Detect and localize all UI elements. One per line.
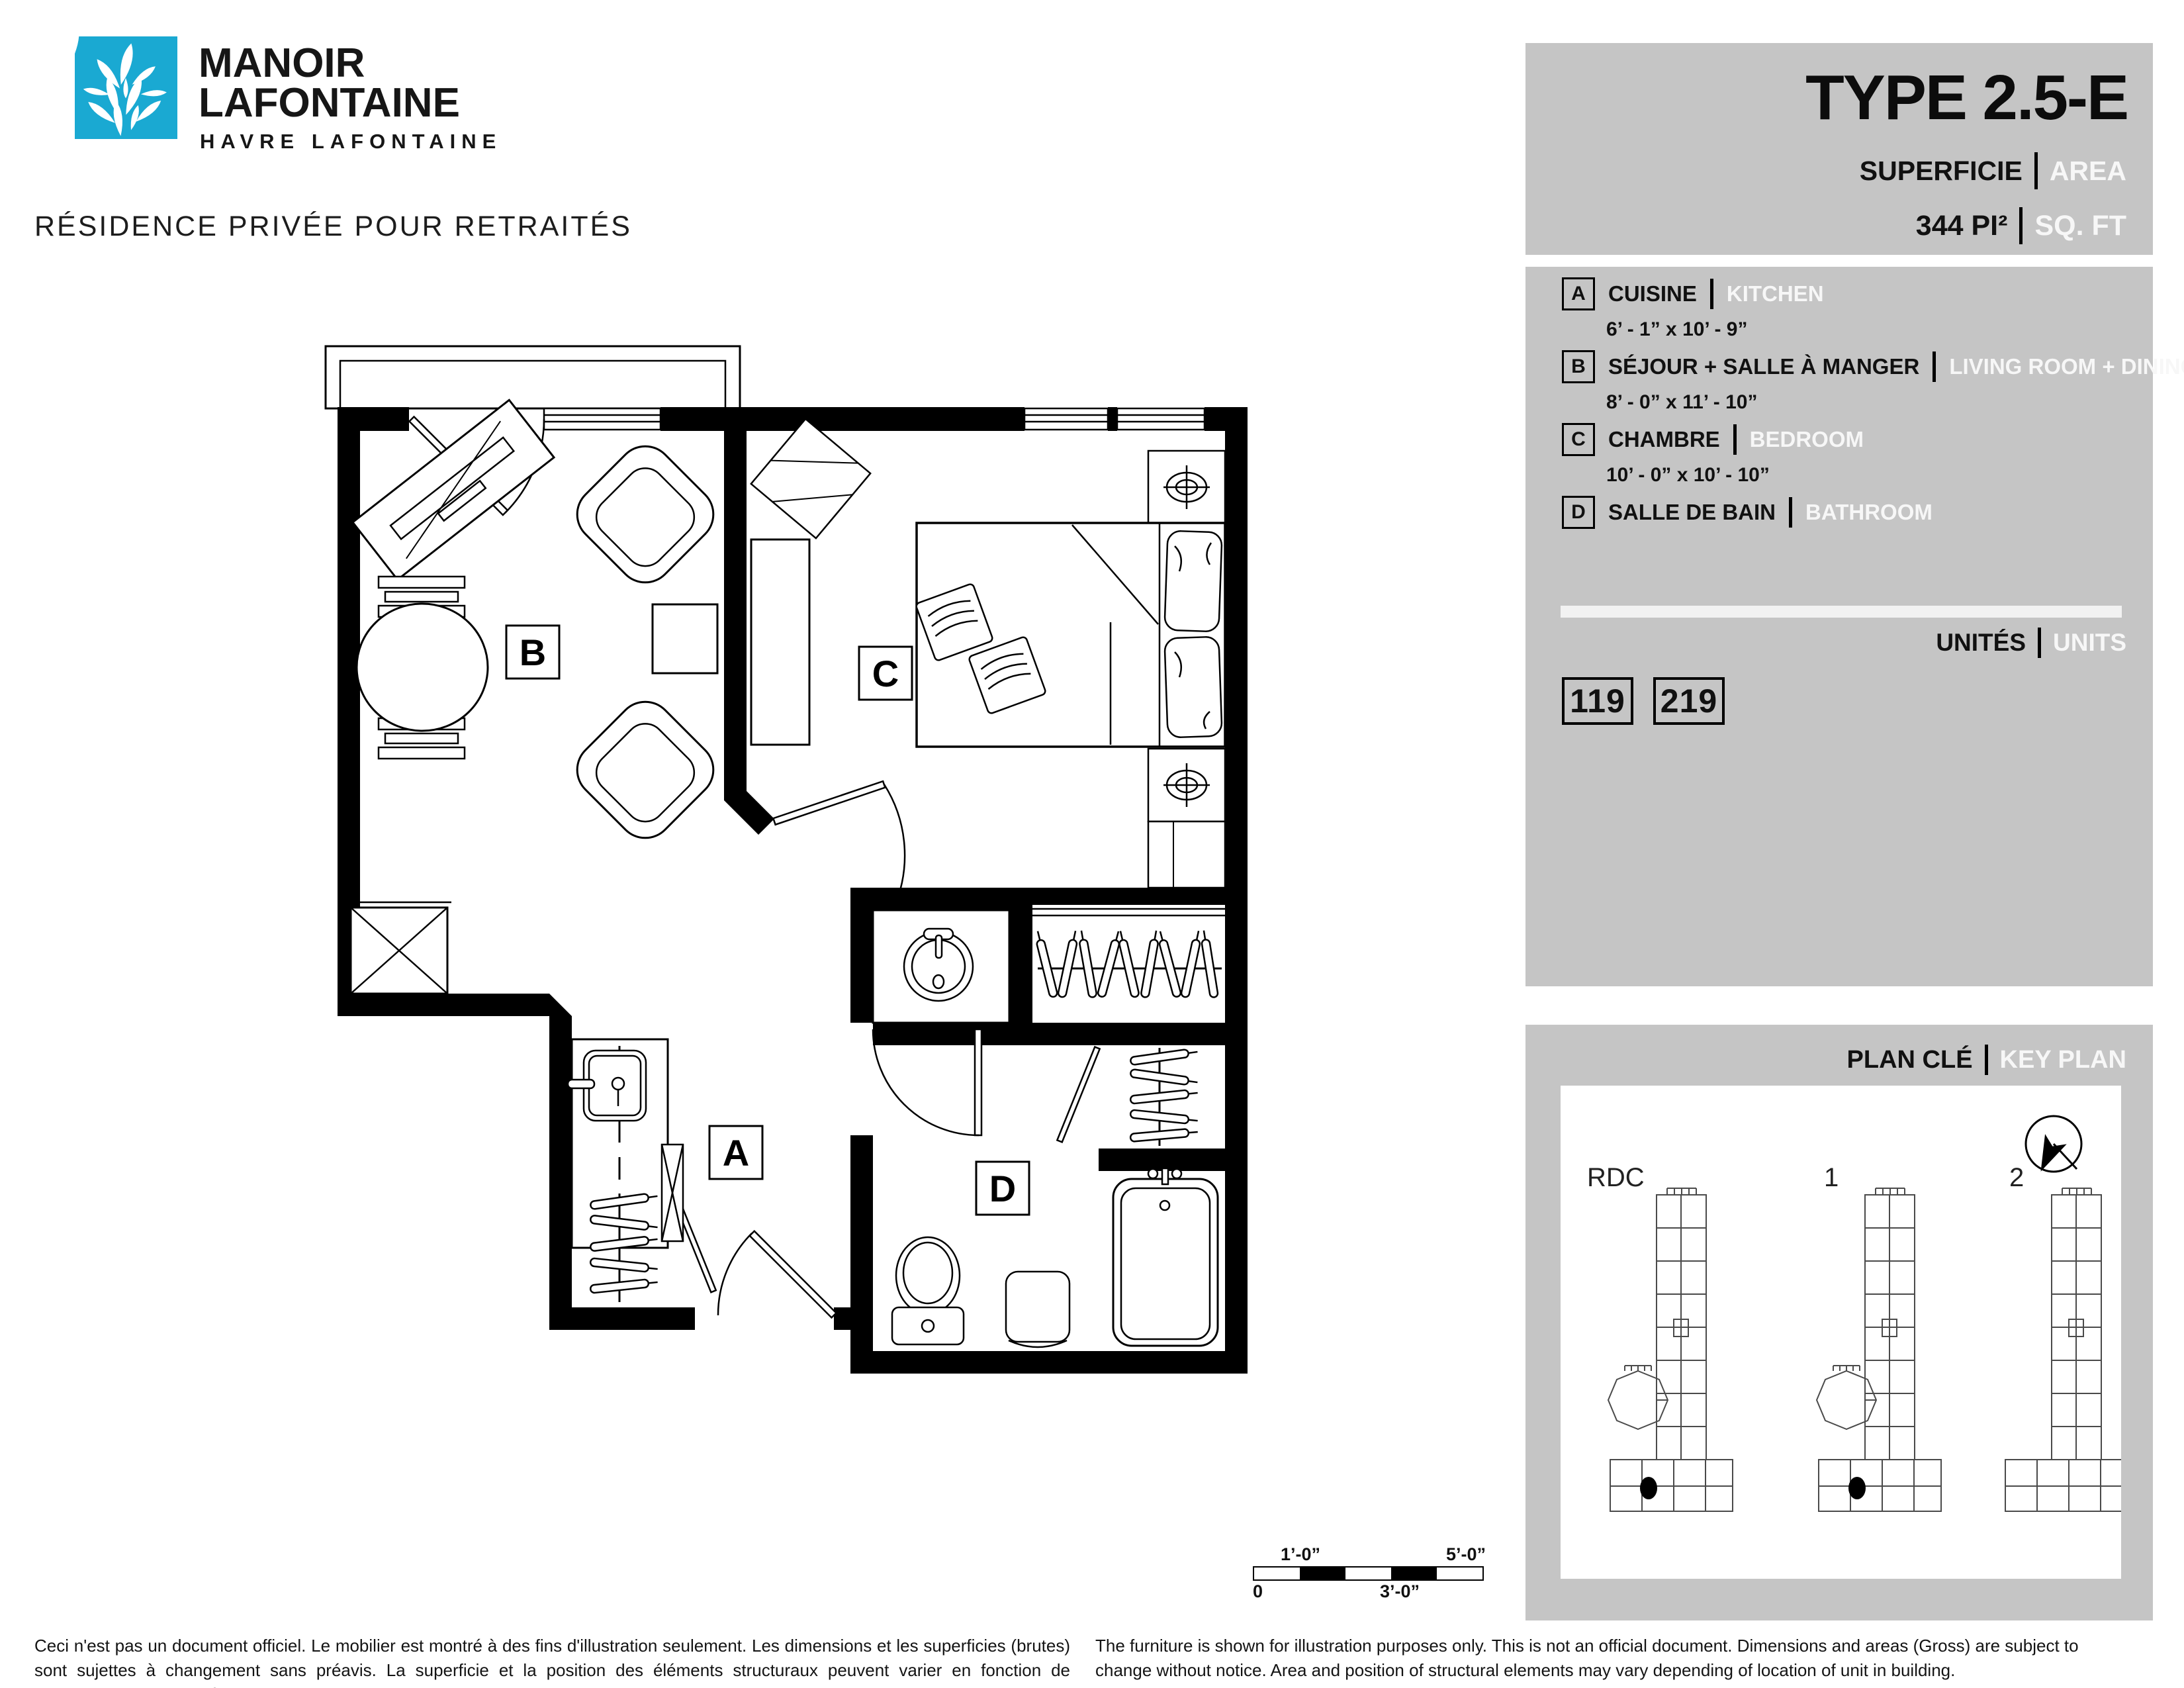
scale-bar: 1’-0” 5’-0” 0 3’-0” [1253,1544,1486,1592]
brand-tagline: RÉSIDENCE PRIVÉE POUR RETRAITÉS [34,211,632,243]
bedroom-furniture [751,419,1225,888]
key-plan-canvas: RDC 1 2 [1561,1086,2121,1579]
room-label-a: A [723,1132,749,1174]
scale-tick-label: 0 [1253,1581,1263,1602]
key-plan-floor-label-rdc: RDC [1587,1163,1645,1192]
legend-name-en: BEDROOM [1750,427,1864,452]
brand-name: MANOIR LAFONTAINE [199,44,460,123]
legend-dimensions: 10’ - 0” x 10’ - 10” [1606,464,1770,487]
key-plan-label-fr: PLAN CLÉ [1847,1046,1973,1074]
coffee-table [653,604,717,673]
area-value: 344 PI² [1916,210,2008,242]
key-plan-panel: PLAN CLÉ KEY PLAN [1525,1025,2153,1620]
legend-dimensions: 8’ - 0” x 11’ - 10” [1606,391,1758,414]
key-plan-label-en: KEY PLAN [2000,1046,2126,1074]
scale-bar-segments [1253,1566,1484,1581]
vanity-sink [873,910,1009,1023]
legend-name-fr: CUISINE [1608,281,1697,306]
room-label-b: B [520,632,546,673]
key-plan-drawing: RDC 1 2 [1561,1086,2121,1579]
superficie-label-fr: SUPERFICIE [1860,156,2023,187]
scale-tick-label: 5’-0” [1446,1544,1486,1565]
armchair [566,690,725,849]
legend-panel: A CUISINE KITCHEN 6’ - 1” x 10’ - 9” B S… [1525,267,2153,986]
compass-icon [2026,1116,2081,1176]
armchair [566,435,725,594]
units-label-fr: UNITÉS [1936,629,2026,657]
legend-key-d: D [1562,496,1595,529]
separator [1733,424,1737,455]
legend-dimensions: 6’ - 1” x 10’ - 9” [1606,318,1747,341]
unit-number-badge: 219 [1653,677,1725,725]
title-panel: TYPE 2.5-E SUPERFICIE AREA 344 PI² SQ. F… [1525,43,2153,255]
area-unit-en: SQ. FT [2034,210,2126,242]
bathtub [1113,1168,1218,1346]
entry-door [718,1231,837,1318]
unit-number-badge: 119 [1562,677,1633,725]
separator [1789,497,1792,528]
room-label-c: C [872,653,899,694]
disclaimer-french: Ceci n'est pas un document officiel. Le … [34,1634,1070,1688]
separator [1933,352,1936,382]
linen-closet [1130,1048,1199,1146]
legend-key-c: C [1562,423,1595,456]
legend-key-b: B [1562,350,1595,383]
refrigerator [348,902,451,994]
floor-plan-sheet: MANOIR LAFONTAINE HAVRE LAFONTAINE RÉSID… [0,0,2184,1688]
scale-tick-label: 3’-0” [1380,1581,1420,1602]
wardrobe [1148,821,1225,888]
brand-subtitle: HAVRE LAFONTAINE [200,130,502,154]
brand-logo [75,36,177,139]
toilet [892,1237,964,1344]
dining-table [357,604,488,731]
panel-divider [1561,606,2122,618]
key-plan-floor-2 [2005,1188,2121,1511]
brand-name-line1: MANOIR [199,44,460,83]
separator [1985,1045,1988,1075]
bath-bench [1006,1272,1069,1347]
key-plan-floor-label-2: 2 [2009,1163,2024,1192]
unit-type-title: TYPE 2.5-E [1805,62,2128,134]
room-label-d: D [989,1168,1016,1209]
bedroom-chair [751,419,870,538]
legend-key-a: A [1562,277,1595,310]
dresser [751,539,809,745]
legend-name-en: KITCHEN [1727,281,1824,306]
balcony [326,346,740,408]
separator [1710,279,1713,309]
bed [915,523,1225,747]
key-plan-floor-rdc [1608,1188,1733,1511]
scale-tick-label: 1’-0” [1281,1544,1320,1565]
legend-name-en: LIVING ROOM + DINING [1949,354,2184,379]
area-label-en: AREA [2050,156,2126,187]
separator [2034,152,2038,189]
floor-plan-drawing: B C A D [285,321,1251,1519]
key-plan-floor-label-1: 1 [1824,1163,1839,1192]
leaf-cluster-icon [75,36,177,139]
stove [662,1145,683,1241]
brand-name-line2: LAFONTAINE [199,83,460,123]
walkin-closet [1034,930,1222,998]
legend-name-fr: CHAMBRE [1608,427,1720,452]
legend-name-fr: SÉJOUR + SALLE À MANGER [1608,354,1919,379]
unit-location-dot [1640,1477,1657,1499]
disclaimer-english: The furniture is shown for illustration … [1095,1634,2108,1683]
unit-location-dot [1848,1477,1866,1499]
legend-name-en: BATHROOM [1805,500,1933,525]
key-plan-floor-1 [1817,1188,1941,1511]
separator [2019,207,2023,244]
legend-name-fr: SALLE DE BAIN [1608,500,1776,525]
separator [2038,628,2041,658]
units-label-en: UNITS [2053,629,2126,657]
